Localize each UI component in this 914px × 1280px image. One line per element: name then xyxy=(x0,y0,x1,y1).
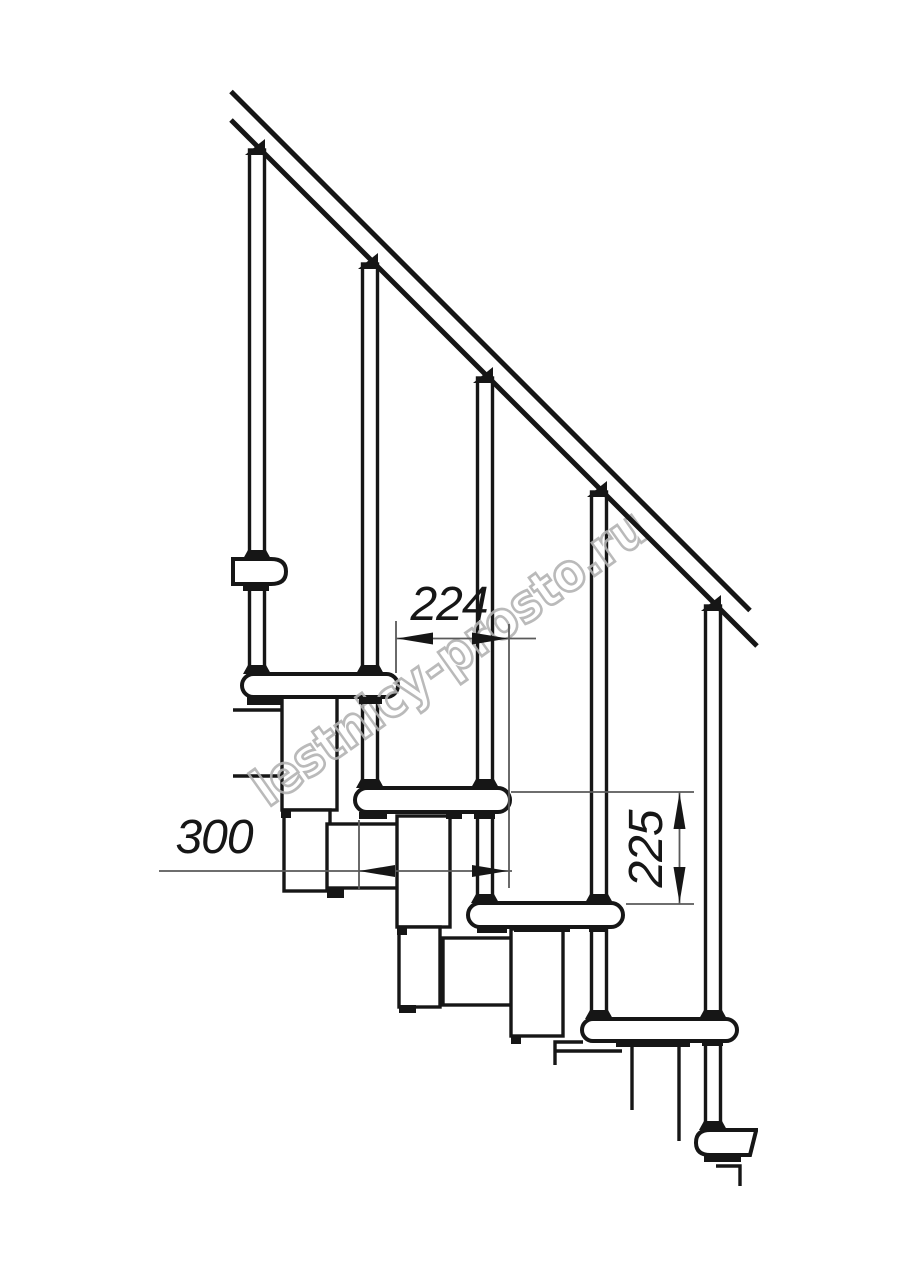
nub-a1 xyxy=(281,810,291,818)
tread-0-partial xyxy=(233,559,286,584)
tread-2 xyxy=(355,788,510,812)
collar-b1-t0 xyxy=(243,550,271,559)
collar-b2-t1 xyxy=(356,665,384,674)
staircase-technical-drawing: lestnicy-prosto.ru xyxy=(0,0,914,1280)
clamp-under-t3-right xyxy=(589,925,608,932)
collar-b4-t3 xyxy=(585,894,613,903)
dim-225-arrow-down xyxy=(674,867,686,903)
nub-a3 xyxy=(511,1036,521,1044)
tread-5-partial xyxy=(696,1130,756,1155)
module-box-b2 xyxy=(399,927,440,1007)
drawing-canvas: lestnicy-prosto.ru xyxy=(0,0,914,1280)
dim-224-label: 224 xyxy=(409,578,487,631)
collar-b5-t4 xyxy=(699,1010,727,1019)
tread-4 xyxy=(582,1019,737,1041)
clamp-under-t4-right xyxy=(702,1039,723,1046)
collar-b3-t2 xyxy=(471,779,499,788)
clamp-under-t2-left xyxy=(359,812,387,819)
module-box-a5-cropped xyxy=(716,1166,740,1186)
collar-b4-t4 xyxy=(585,1010,613,1019)
module-box-a3 xyxy=(511,929,563,1036)
dim-300-label: 300 xyxy=(175,811,253,864)
module-box-b3-cropped xyxy=(555,1042,583,1065)
clamp-under-t0 xyxy=(243,584,269,591)
clamp-under-t4 xyxy=(616,1039,690,1047)
clamp-under-t5 xyxy=(704,1154,741,1162)
nub-b1 xyxy=(327,888,344,898)
clamp-under-t3-left xyxy=(477,925,507,933)
clamp-under-t1-right xyxy=(359,697,382,704)
collar-b5-t5 xyxy=(699,1121,727,1130)
clamp-under-t2-right xyxy=(474,812,495,819)
tread-3 xyxy=(468,903,623,927)
module-box-b1 xyxy=(284,810,330,891)
module-box-c2 xyxy=(443,938,520,1005)
clamp-under-t3-mid xyxy=(514,925,570,932)
nub-b2 xyxy=(399,1005,416,1013)
dim-225-label: 225 xyxy=(620,809,673,888)
module-box-c1 xyxy=(327,824,405,888)
collar-b2-t2 xyxy=(356,779,384,788)
collar-b3-t3 xyxy=(471,894,499,903)
dim-224-arrow-left xyxy=(397,633,433,645)
clamp-under-t2-mid xyxy=(446,812,462,819)
module-box-a4-cropped xyxy=(632,1043,679,1141)
baluster-tube-5 xyxy=(706,606,721,1130)
dim-225-arrow-up xyxy=(674,793,686,829)
clamp-under-t1-left xyxy=(247,696,283,705)
nub-a2 xyxy=(397,927,407,935)
collar-b1-t1 xyxy=(243,665,271,674)
baluster-tube-1 xyxy=(250,150,265,674)
